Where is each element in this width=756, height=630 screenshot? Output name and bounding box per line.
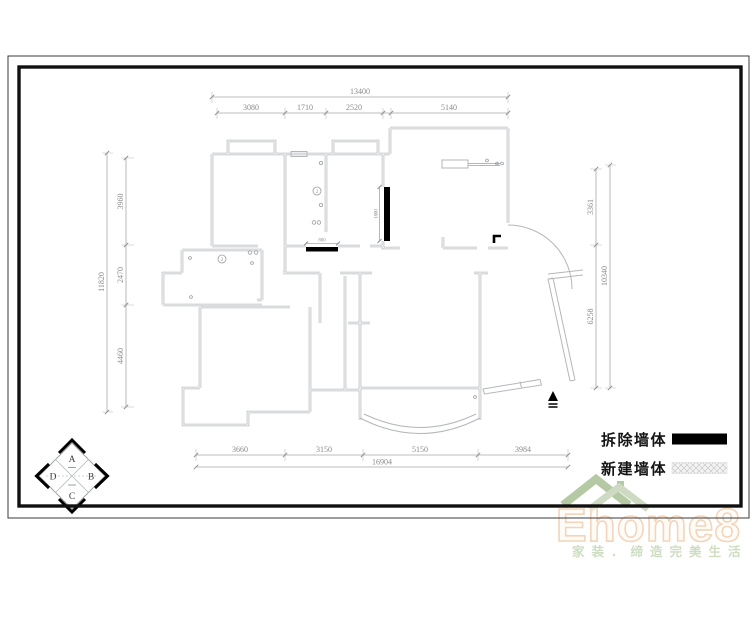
demolished-wall-vertical xyxy=(384,187,390,241)
dim-left-seg-0: 3960 xyxy=(116,194,125,210)
dim-top-seg-2: 2520 xyxy=(346,103,362,112)
dim-left-seg-1: 2470 xyxy=(116,267,125,283)
dim-top-overall: 13400 xyxy=(350,87,370,96)
compass-letter-c: C xyxy=(69,492,75,502)
drawing-sheet: 1800 800 2 2 xyxy=(0,0,756,630)
dim-bottom-overall: 16904 xyxy=(372,458,392,467)
dim-top-seg-1: 1710 xyxy=(297,103,313,112)
dim-right-overall: 10340 xyxy=(600,266,609,286)
dim-bottom-seg-2: 5150 xyxy=(412,445,428,454)
dim-right-seg-0: 3361 xyxy=(586,199,595,215)
legend-new-wall-swatch xyxy=(672,463,727,474)
legend-demolish-swatch xyxy=(672,434,727,445)
demolished-wall-horizontal xyxy=(306,247,338,252)
dim-left-overall: 11820 xyxy=(97,272,106,292)
dim-inline-1800: 1800 xyxy=(375,209,380,219)
dim-inline-800: 800 xyxy=(318,239,326,244)
dim-left-seg-2: 4460 xyxy=(116,348,125,364)
dim-bottom-seg-0: 3660 xyxy=(232,445,248,454)
floorplan-svg: 1800 800 2 2 xyxy=(0,0,756,630)
legend-demolish-label: 拆除墙体 xyxy=(601,431,667,449)
compass-letter-b: B xyxy=(88,473,94,483)
legend-new-wall-label: 新建墙体 xyxy=(601,460,667,478)
watermark-tagline: 家装．缔造完美生活 xyxy=(572,544,748,559)
dim-top-seg-0: 3080 xyxy=(243,103,259,112)
compass-letter-d: D xyxy=(50,473,57,483)
dim-bottom-seg-1: 3150 xyxy=(316,445,332,454)
dim-right-seg-1: 6258 xyxy=(586,309,595,325)
dim-bottom-seg-3: 3984 xyxy=(515,445,531,454)
dim-top-seg-3: 5140 xyxy=(441,103,457,112)
compass-letter-a: A xyxy=(69,455,76,465)
